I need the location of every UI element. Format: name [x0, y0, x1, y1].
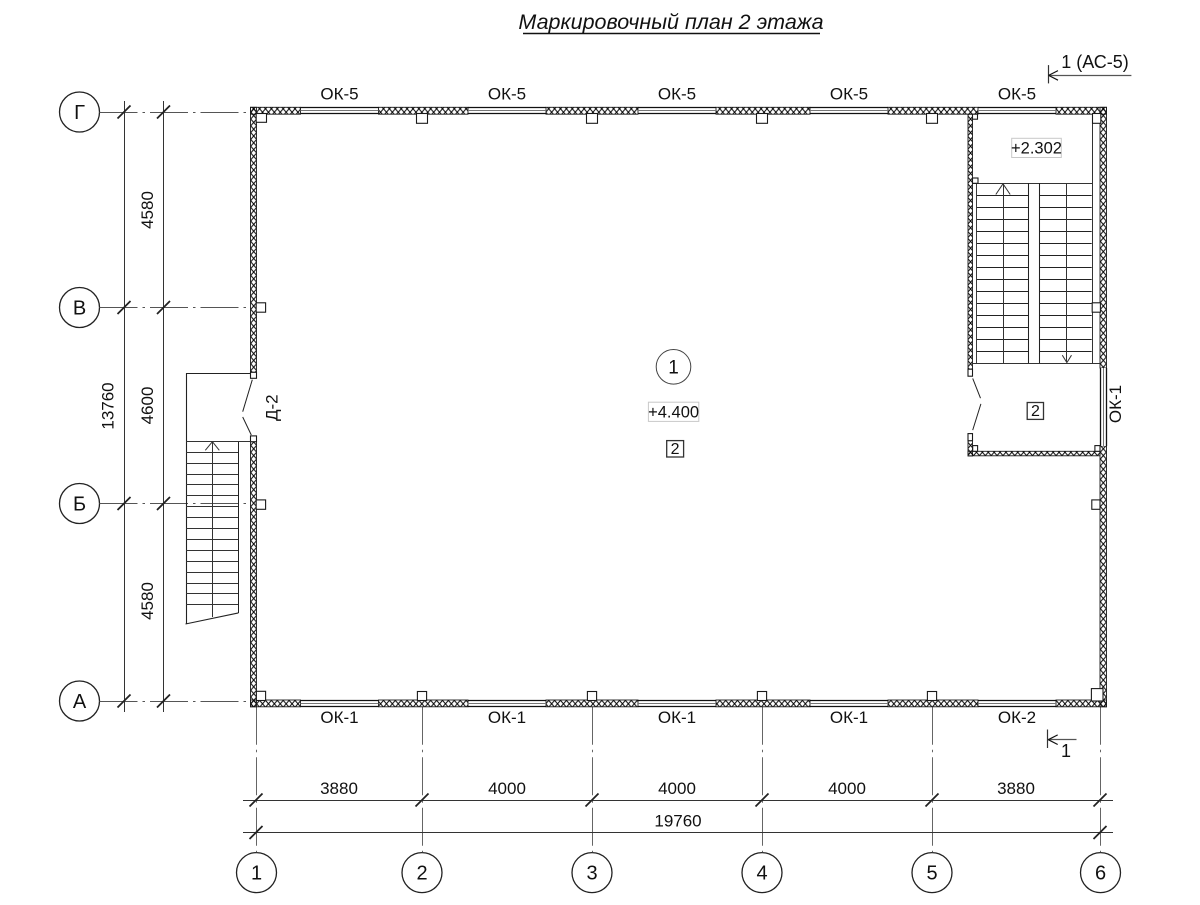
svg-text:В: В: [73, 298, 86, 320]
svg-text:ОК-1: ОК-1: [658, 708, 696, 727]
svg-text:4600: 4600: [138, 387, 157, 425]
svg-text:ОК-5: ОК-5: [998, 85, 1036, 104]
svg-text:ОК-1: ОК-1: [488, 708, 526, 727]
svg-text:3: 3: [586, 863, 597, 885]
svg-text:ОК-2: ОК-2: [998, 708, 1036, 727]
svg-text:3880: 3880: [320, 779, 358, 798]
svg-text:4580: 4580: [138, 191, 157, 229]
svg-text:4000: 4000: [658, 779, 696, 798]
svg-text:6: 6: [1095, 863, 1106, 885]
svg-text:4000: 4000: [488, 779, 526, 798]
svg-text:2: 2: [416, 863, 427, 885]
svg-text:А: А: [73, 691, 87, 713]
svg-text:Б: Б: [73, 494, 86, 516]
svg-text:Маркировочный план 2 этажа: Маркировочный план 2 этажа: [518, 10, 823, 34]
svg-text:ОК-5: ОК-5: [658, 85, 696, 104]
svg-text:ОК-5: ОК-5: [488, 85, 526, 104]
svg-text:5: 5: [926, 863, 937, 885]
svg-text:ОК-5: ОК-5: [830, 85, 868, 104]
svg-text:ОК-1: ОК-1: [1106, 385, 1125, 423]
svg-text:2: 2: [671, 441, 680, 458]
svg-text:Г: Г: [74, 102, 85, 124]
svg-text:4580: 4580: [138, 582, 157, 620]
svg-text:13760: 13760: [99, 382, 118, 429]
svg-text:1: 1: [1061, 741, 1071, 761]
svg-text:ОК-1: ОК-1: [830, 708, 868, 727]
svg-text:4: 4: [756, 863, 767, 885]
svg-text:+4.400: +4.400: [648, 403, 699, 421]
svg-text:19760: 19760: [654, 812, 701, 831]
svg-text:1 (АС-5): 1 (АС-5): [1061, 52, 1129, 72]
svg-text:1: 1: [251, 863, 262, 885]
svg-text:2: 2: [1031, 403, 1040, 420]
svg-text:ОК-1: ОК-1: [320, 708, 358, 727]
svg-text:3880: 3880: [997, 779, 1035, 798]
svg-text:1: 1: [668, 358, 679, 379]
svg-text:4000: 4000: [828, 779, 866, 798]
svg-text:ОК-5: ОК-5: [320, 85, 358, 104]
svg-text:Д-2: Д-2: [263, 394, 282, 421]
svg-text:+2.302: +2.302: [1011, 140, 1062, 158]
